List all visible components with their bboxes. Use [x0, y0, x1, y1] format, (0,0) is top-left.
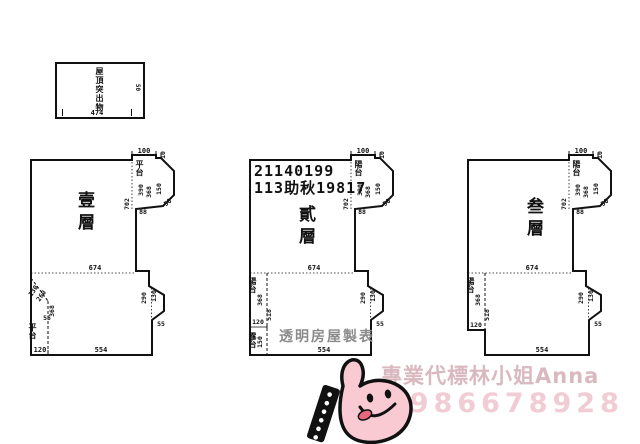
- floor-1-terrace-label: 平台: [135, 160, 143, 176]
- dim-top: 100: [357, 147, 370, 155]
- dim-r2: 130: [150, 290, 158, 302]
- dim-bottom: 554: [95, 346, 108, 354]
- dim-r1: 290: [577, 292, 585, 304]
- roof-protrusion-label: 屋頂突出物: [95, 67, 103, 112]
- dim-bl3: 120: [252, 318, 264, 326]
- dim-bl1: 368: [474, 294, 482, 306]
- dim-bl4: 150: [256, 336, 264, 348]
- floor-2-name: 貳層: [296, 205, 313, 249]
- floor-plan-3: 100 10 390 368 150 702 88 50 674 290 130…: [452, 145, 627, 370]
- floor-1-name: 壹層: [75, 191, 92, 235]
- dim-top: 100: [138, 147, 151, 155]
- dim-bl5: 120: [34, 346, 47, 354]
- dim-r1: 290: [140, 292, 148, 304]
- roof-width-dimension: 474: [57, 109, 137, 117]
- dim-p1: 390: [574, 184, 582, 196]
- dim-base: 88: [358, 208, 366, 216]
- dimension-tick: [131, 109, 132, 116]
- case-number-block: 21140199 113助秋19817: [254, 163, 366, 198]
- floor-1-drawing: 100 10 390 368 150 702 88 50 674 290 130…: [15, 145, 190, 370]
- dim-base: 88: [139, 208, 147, 216]
- dim-mid: 674: [308, 264, 321, 272]
- dim-mid: 674: [89, 264, 102, 272]
- roof-protrusion-box: 屋頂突出物 474 50: [55, 62, 145, 119]
- dim-side: 702: [342, 198, 350, 210]
- dim-bl1: 368: [256, 294, 264, 306]
- case-number-line2: 113助秋19817: [254, 180, 366, 197]
- floor-outline: [31, 155, 174, 355]
- hand-shape: [340, 360, 411, 443]
- dim-p2: 368: [145, 186, 153, 198]
- floor-outline: [468, 155, 611, 355]
- dim-r3: 55: [594, 320, 602, 328]
- floor-3-balcony-label: 陽台: [466, 277, 474, 293]
- dim-top: 100: [575, 147, 588, 155]
- floor-3-terrace-label: 陽台: [572, 160, 580, 176]
- dim-bl2: 518: [265, 309, 273, 321]
- floor-3-name: 叁層: [524, 197, 541, 241]
- floor-2-roofdeck-label: 露台: [248, 332, 256, 348]
- floor-plan-1: 100 10 390 368 150 702 88 50 674 290 130…: [15, 145, 190, 370]
- dimension-tick: [62, 109, 63, 116]
- dim-p2: 368: [582, 186, 590, 198]
- dim-r3: 55: [157, 320, 165, 328]
- dim-base: 88: [576, 208, 584, 216]
- floorplan-document: 屋頂突出物 474 50 100 10 390 368 150 702 88 5…: [0, 0, 640, 444]
- floor-1-bl-label: 平台: [28, 323, 36, 339]
- dim-step: 10: [378, 151, 386, 159]
- dim-r1: 290: [359, 292, 367, 304]
- dim-bottom: 554: [536, 346, 549, 354]
- dim-p3: 150: [592, 183, 600, 195]
- thumbs-up-smiley-hand-icon: [303, 352, 428, 444]
- dim-r2: 130: [369, 290, 377, 302]
- dim-step: 10: [596, 151, 604, 159]
- maker-watermark: 透明房屋製表: [279, 326, 375, 346]
- dim-r3: 55: [376, 320, 384, 328]
- floor-2-balcony-label: 陽台: [248, 277, 256, 293]
- sleeve-cuff: [306, 384, 340, 443]
- dim-bl4: 368: [48, 305, 56, 317]
- dim-step: 10: [159, 151, 167, 159]
- dim-side: 702: [560, 198, 568, 210]
- dim-side: 702: [123, 198, 131, 210]
- case-number-line1: 21140199: [254, 163, 366, 180]
- dim-p3: 150: [155, 183, 163, 195]
- roof-height-dimension: 50: [134, 84, 141, 91]
- dim-mid: 674: [526, 264, 539, 272]
- dim-p3: 150: [374, 183, 382, 195]
- dim-bl3: 120: [470, 321, 482, 329]
- floor-3-drawing: 100 10 390 368 150 702 88 50 674 290 130…: [452, 145, 627, 370]
- dim-p1: 390: [137, 184, 145, 196]
- dim-r2: 130: [587, 290, 595, 302]
- dim-bl2: 518: [483, 309, 491, 321]
